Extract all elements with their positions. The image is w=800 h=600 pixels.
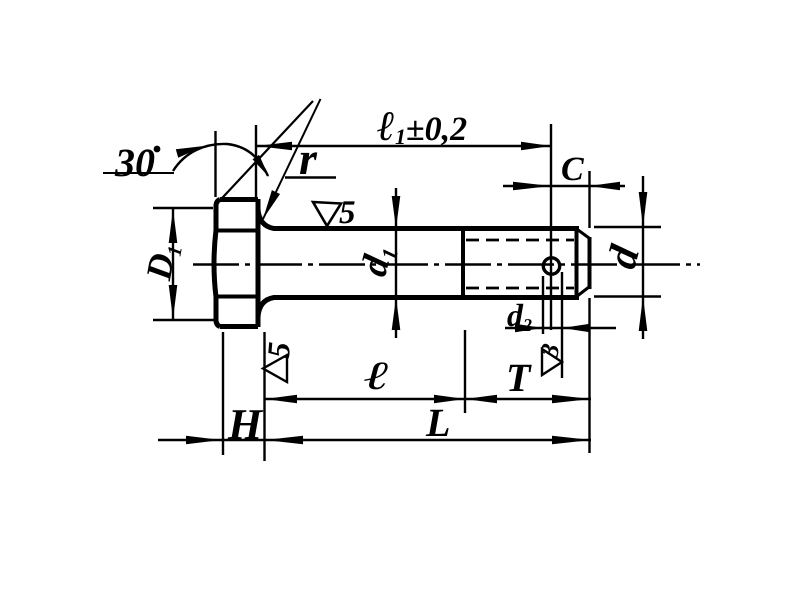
svg-text:H: H [227,400,264,449]
svg-text:30: 30 [114,140,155,185]
svg-text:T: T [506,355,532,400]
svg-text:ℓ: ℓ [364,353,390,398]
svg-text:ℓ1±0,2: ℓ1±0,2 [377,104,467,150]
svg-text:L: L [425,400,450,445]
svg-text:C: C [561,151,584,188]
svg-text:5: 5 [339,195,356,231]
